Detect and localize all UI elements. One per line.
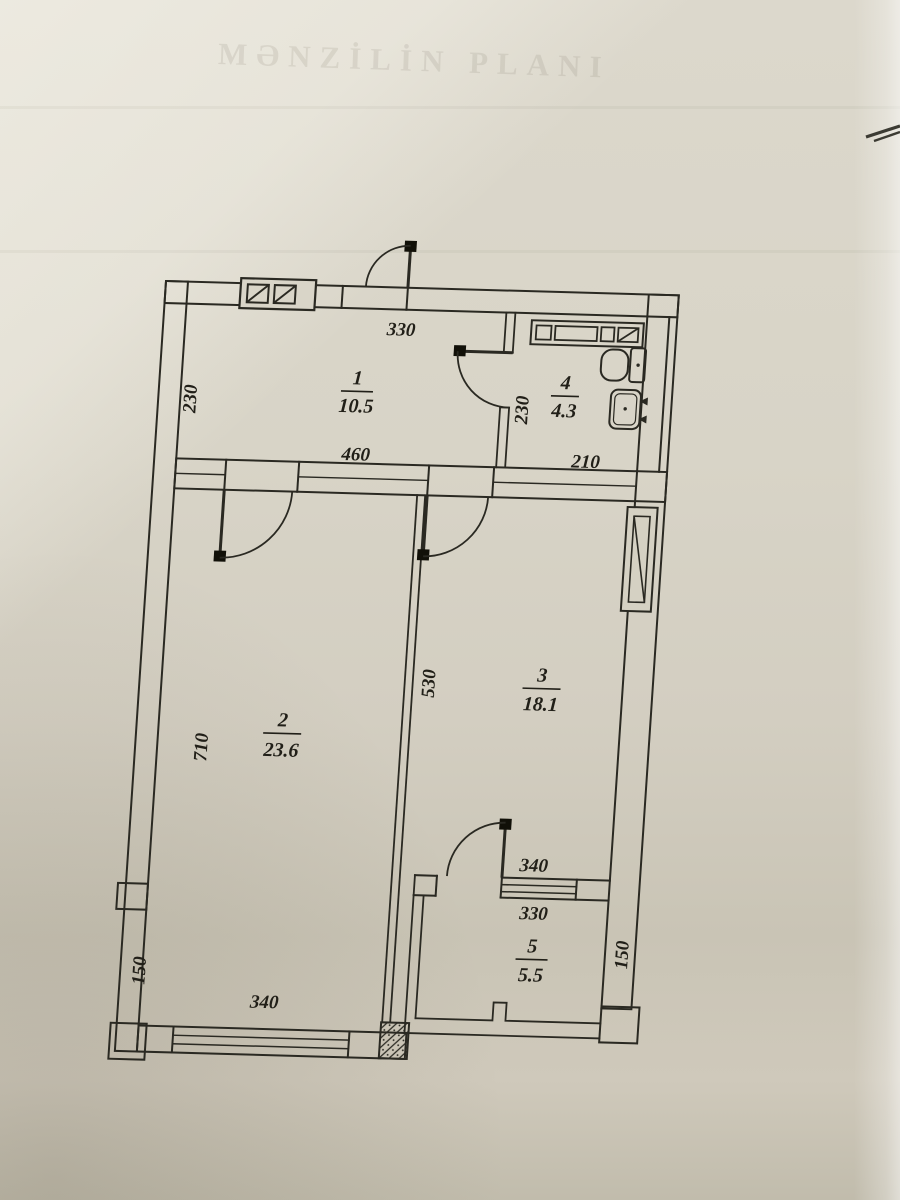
room-4-label: 4 4.3	[549, 372, 580, 423]
room2-window	[172, 1035, 349, 1049]
balcony-door	[447, 817, 512, 878]
room2-door	[213, 490, 292, 564]
bath-door	[450, 345, 513, 408]
door-hinge	[213, 550, 226, 561]
dimension-labels: 330 460 210 230 230 710 530 340 330 150 …	[127, 313, 675, 1023]
corner-block-right	[599, 1006, 639, 1043]
toilet	[600, 347, 646, 382]
balcony-window	[501, 885, 576, 894]
dim-entry-top: 330	[385, 319, 416, 341]
dim-room2-window: 340	[248, 992, 279, 1014]
room3-door	[417, 495, 488, 562]
floorplan-svg: 330 460 210 230 230 710 530 340 330 150 …	[82, 225, 739, 1104]
bath-counter	[530, 320, 644, 347]
hatched-column	[379, 1022, 409, 1059]
dim-left-parapet: 150	[128, 956, 151, 986]
entry-door	[366, 240, 417, 288]
dim-balcony-door: 340	[518, 855, 549, 877]
floorplan-drawing: 330 460 210 230 230 710 530 340 330 150 …	[82, 225, 739, 1104]
dim-room1-side: 230	[179, 384, 202, 415]
room-labels: 1 10.5 4 4.3 2 23.6 3 18.1 5	[247, 364, 587, 986]
svg-text:1: 1	[352, 367, 363, 389]
svg-text:5.5: 5.5	[517, 964, 543, 987]
paper-edge-highlight	[854, 0, 900, 1200]
paper-crease	[0, 106, 900, 109]
electrical-panel	[239, 278, 316, 310]
dim-partition-23: 530	[418, 668, 441, 698]
room-5-label: 5 5.5	[514, 935, 549, 987]
svg-text:4.3: 4.3	[550, 400, 577, 423]
door-hinge	[453, 345, 466, 356]
room-3-label: 3 18.1	[521, 664, 562, 716]
dim-bath-width: 210	[570, 451, 601, 473]
svg-text:2: 2	[276, 709, 288, 731]
door-hinge	[417, 549, 430, 560]
corner-block-left	[108, 1023, 146, 1060]
svg-text:4: 4	[559, 372, 571, 394]
dim-room2-side: 710	[190, 732, 213, 762]
dim-room1-width: 460	[340, 444, 371, 466]
svg-text:18.1: 18.1	[522, 693, 558, 716]
dim-balcony-side: 150	[611, 940, 634, 970]
door-hinge	[499, 819, 512, 830]
svg-text:5: 5	[527, 935, 538, 957]
room-2-label: 2 23.6	[261, 709, 302, 762]
vent-shaft	[621, 507, 658, 612]
dim-bath-side: 230	[511, 395, 534, 426]
floorplan-photo: MƏNZİLİN PLANI	[0, 0, 900, 1200]
room-1-label: 1 10.5	[338, 367, 376, 418]
left-wall-pier	[116, 883, 148, 910]
svg-text:3: 3	[536, 665, 548, 687]
svg-text:23.6: 23.6	[262, 739, 299, 762]
svg-text:10.5: 10.5	[338, 395, 374, 418]
plan-title-watermark: MƏNZİLİN PLANI	[218, 36, 679, 88]
dim-balcony-width: 330	[518, 903, 549, 925]
pen-mark	[852, 98, 900, 158]
